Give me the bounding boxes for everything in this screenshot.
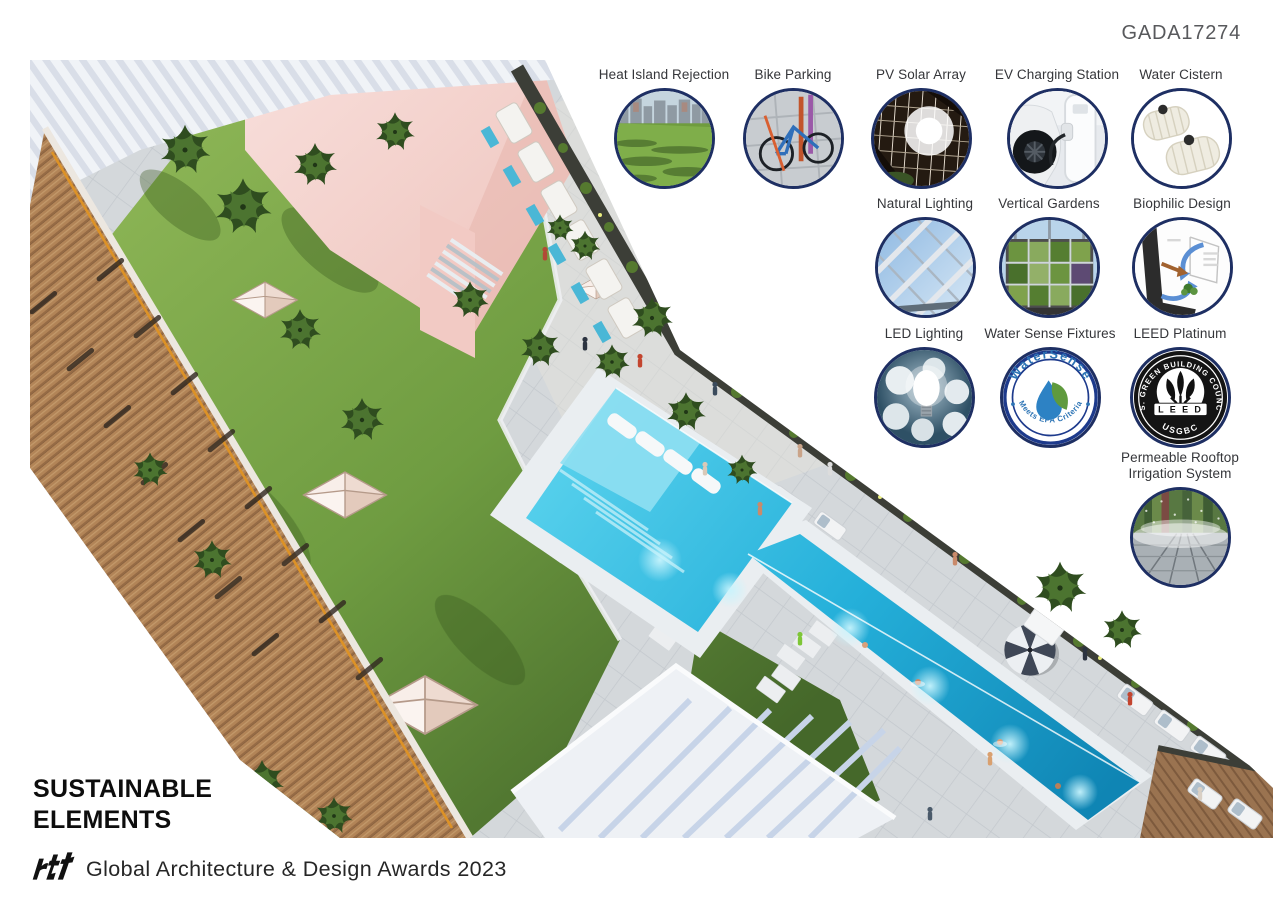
title-line-1: SUSTAINABLE <box>33 774 212 805</box>
natural-lighting-photo <box>875 217 976 318</box>
badge-water-sense-fixtures: Water Sense Fixtures WaterSense Meets EP… <box>975 326 1125 448</box>
permeable-rooftop-icon <box>1133 490 1228 585</box>
badge-label: Heat Island Rejection <box>589 67 739 83</box>
heat-island-photo <box>614 88 715 189</box>
permeable-rooftop-photo <box>1130 487 1231 588</box>
badge-label: Water Sense Fixtures <box>975 326 1125 342</box>
badge-label-line2: Irrigation System <box>1129 466 1232 481</box>
ev-charging-photo <box>1007 88 1108 189</box>
natural-lighting-icon <box>878 220 973 315</box>
badge-label: Permeable Rooftop Irrigation System <box>1105 450 1255 482</box>
watersense-logo-icon: WaterSense Meets EPA Criteria <box>1003 350 1098 445</box>
badge-biophilic-design: Biophilic Design <box>1107 196 1257 318</box>
ev-charging-icon <box>1010 91 1105 186</box>
led-lighting-photo <box>874 347 975 448</box>
badge-label: Water Cistern <box>1106 67 1256 83</box>
badge-leed-platinum: LEED Platinum U.S. GREEN BUILDING COUNCI… <box>1105 326 1255 448</box>
rtf-logo <box>30 845 76 887</box>
footer: Global Architecture & Design Awards 2023 <box>30 845 507 887</box>
board-title: SUSTAINABLE ELEMENTS <box>33 774 212 836</box>
badge-heat-island-rejection: Heat Island Rejection <box>589 67 739 189</box>
badge-permeable-rooftop: Permeable Rooftop Irrigation System <box>1105 450 1255 588</box>
bike-parking-icon <box>746 91 841 186</box>
badge-label: Vertical Gardens <box>974 196 1124 212</box>
vertical-gardens-photo <box>999 217 1100 318</box>
pv-solar-photo <box>871 88 972 189</box>
badge-water-cistern: Water Cistern <box>1106 67 1256 189</box>
title-line-2: ELEMENTS <box>33 805 212 836</box>
heat-island-icon <box>617 91 712 186</box>
badge-label: LEED Platinum <box>1105 326 1255 342</box>
biophilic-design-photo <box>1132 217 1233 318</box>
wooden-deck <box>1140 748 1273 838</box>
award-text: Global Architecture & Design Awards 2023 <box>86 857 507 882</box>
badge-label: PV Solar Array <box>846 67 996 83</box>
watersense-logo: WaterSense Meets EPA Criteria <box>1000 347 1101 448</box>
biophilic-design-icon <box>1135 220 1230 315</box>
led-lighting-icon <box>877 350 972 445</box>
leed-usgbc-logo-icon: U.S. GREEN BUILDING COUNCIL L E E D USGB… <box>1133 350 1228 445</box>
badge-label-line1: Permeable Rooftop <box>1121 450 1239 465</box>
water-cistern-icon <box>1134 91 1229 186</box>
bike-parking-photo <box>743 88 844 189</box>
leed-logo: U.S. GREEN BUILDING COUNCIL L E E D USGB… <box>1130 347 1231 448</box>
badge-pv-solar-array: PV Solar Array <box>846 67 996 189</box>
vertical-gardens-icon <box>1002 220 1097 315</box>
badge-label: Biophilic Design <box>1107 196 1257 212</box>
leed-banner-text: L E E D <box>1158 405 1203 415</box>
water-cistern-photo <box>1131 88 1232 189</box>
pv-solar-icon <box>874 91 969 186</box>
badge-vertical-gardens: Vertical Gardens <box>974 196 1124 318</box>
